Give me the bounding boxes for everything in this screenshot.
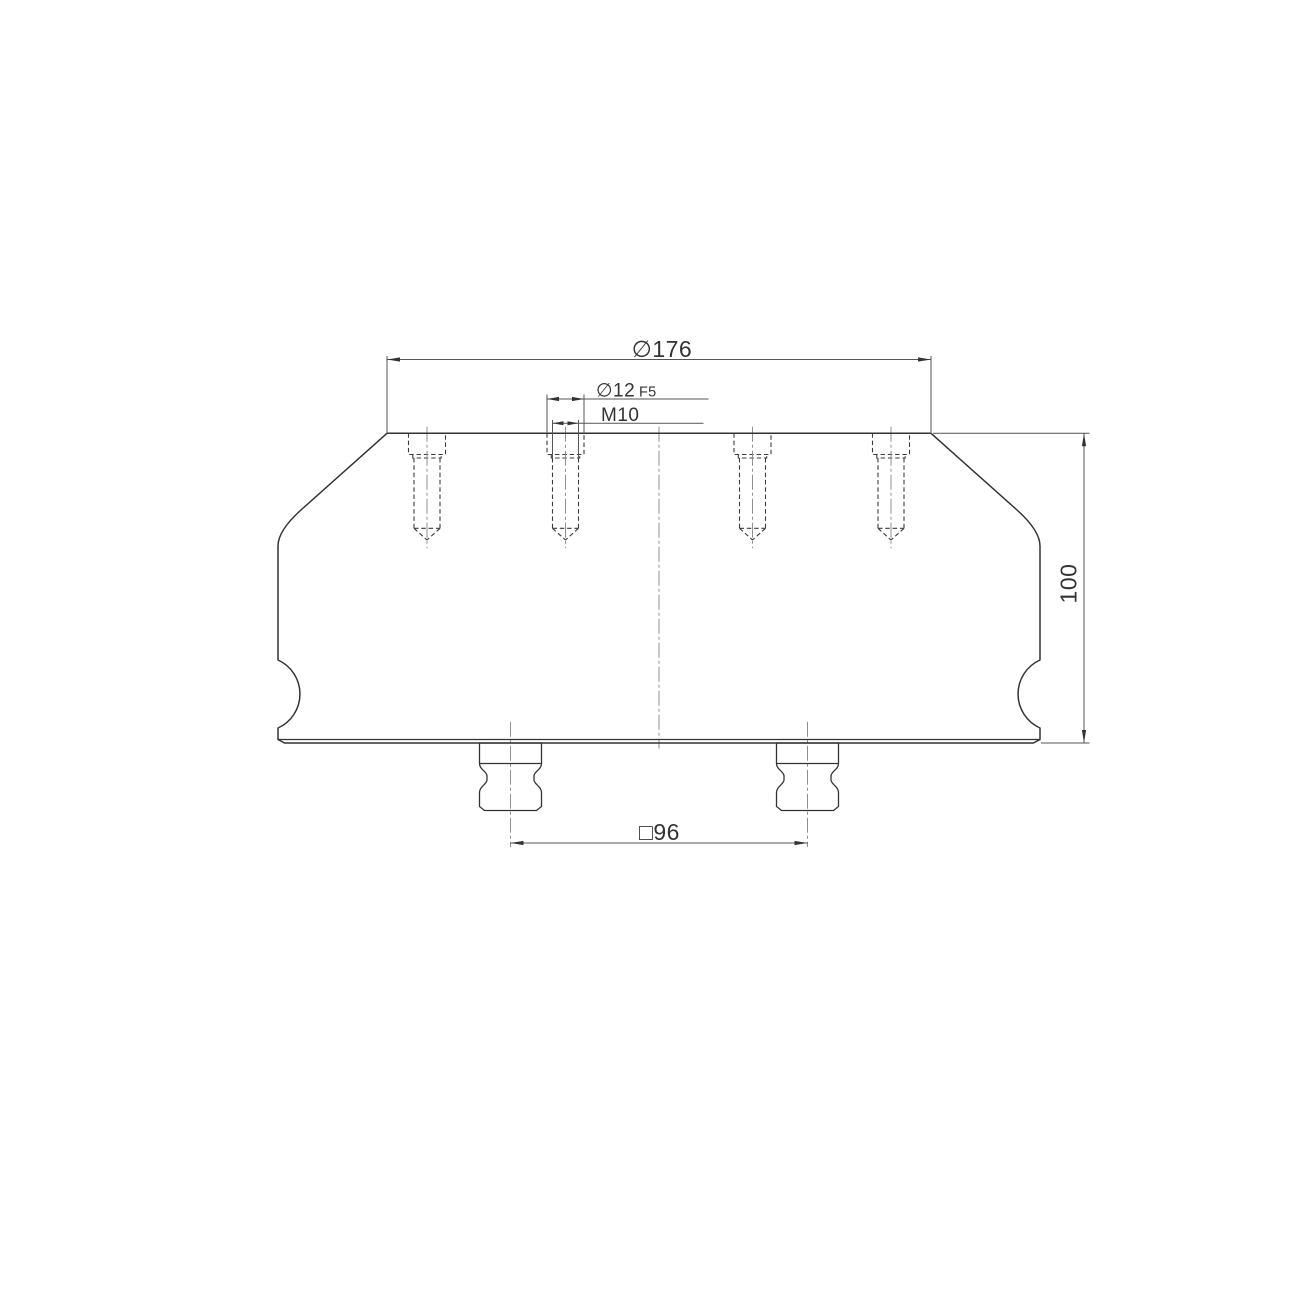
arrowhead-left xyxy=(547,397,559,401)
dim-square-spacing-label: □96 xyxy=(639,819,680,845)
dimension-height: 100 xyxy=(933,433,1090,743)
dim-fit-tolerance-label: F5 xyxy=(639,385,657,401)
dim-fit-diameter-label: ∅12 xyxy=(596,381,635,402)
arrowhead-right xyxy=(572,397,584,401)
arrowhead-right xyxy=(568,421,579,425)
dim-outer-diameter-label: ∅176 xyxy=(632,336,692,362)
arrowhead-left xyxy=(553,421,564,425)
tapped-hole-3 xyxy=(734,427,771,549)
tapped-hole-4 xyxy=(873,427,910,549)
dimension-thread: M10 xyxy=(553,405,704,459)
arrowhead-right xyxy=(918,357,931,361)
dim-height-label: 100 xyxy=(1056,564,1082,604)
arrowhead-top xyxy=(1082,433,1086,446)
dim-thread-label: M10 xyxy=(601,405,639,426)
technical-drawing: ∅176 ∅12 F5 M10 100 □96 xyxy=(0,0,1300,1300)
arrowhead-bottom xyxy=(1082,730,1086,743)
arrowhead-left xyxy=(387,357,400,361)
drawing-canvas: ∅176 ∅12 F5 M10 100 □96 xyxy=(0,0,1300,1300)
arrowhead-right xyxy=(795,841,808,845)
dimension-outer-diameter: ∅176 xyxy=(387,336,931,433)
tapped-hole-1 xyxy=(409,427,446,549)
dimension-square-spacing: □96 xyxy=(511,819,808,845)
arrowhead-left xyxy=(511,841,524,845)
